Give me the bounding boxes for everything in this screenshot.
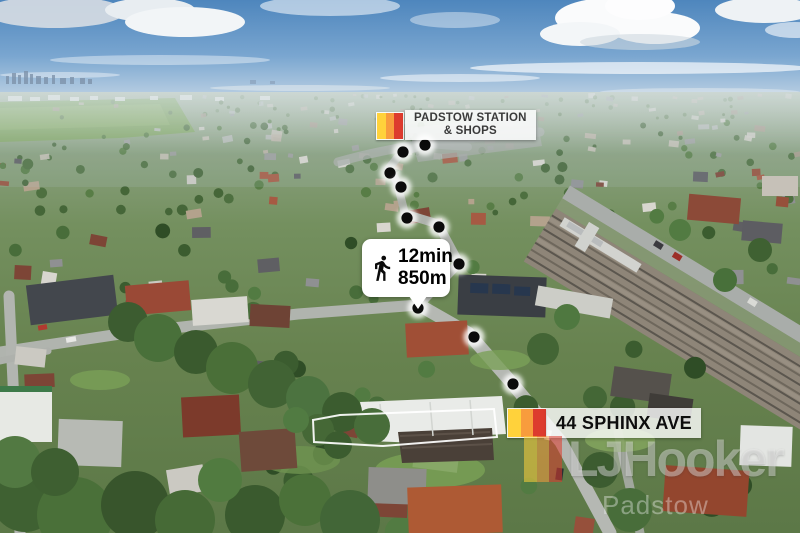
station-label-line2: & SHOPS [414, 125, 527, 138]
walk-time-bubble: 12min 850m [362, 239, 450, 297]
walk-time: 12min [398, 246, 453, 268]
route-dot [401, 212, 412, 223]
route-dot [453, 258, 464, 269]
property-boundary-outline [313, 409, 497, 446]
route-dot [468, 331, 479, 342]
route-dot [507, 378, 518, 389]
route-dot [395, 181, 406, 192]
route-dot [384, 167, 395, 178]
station-label-box: PADSTOW STATION & SHOPS [405, 110, 536, 140]
station-label-line1: PADSTOW STATION [414, 112, 527, 125]
property-label: 44 SPHINX AVE [507, 408, 701, 438]
bubble-pointer [409, 296, 427, 309]
property-flag-icon [507, 408, 547, 438]
station-label: PADSTOW STATION & SHOPS [376, 110, 536, 140]
listing-aerial-photo: PADSTOW STATION & SHOPS 12min 850m 44 SP… [0, 0, 800, 533]
station-flag-icon [376, 112, 404, 140]
route-dot [397, 146, 408, 157]
property-label-box: 44 SPHINX AVE [547, 408, 701, 438]
route-dot [433, 221, 444, 232]
walk-distance: 850m [398, 268, 453, 290]
pedestrian-icon [368, 248, 396, 288]
route-dot [419, 139, 430, 150]
